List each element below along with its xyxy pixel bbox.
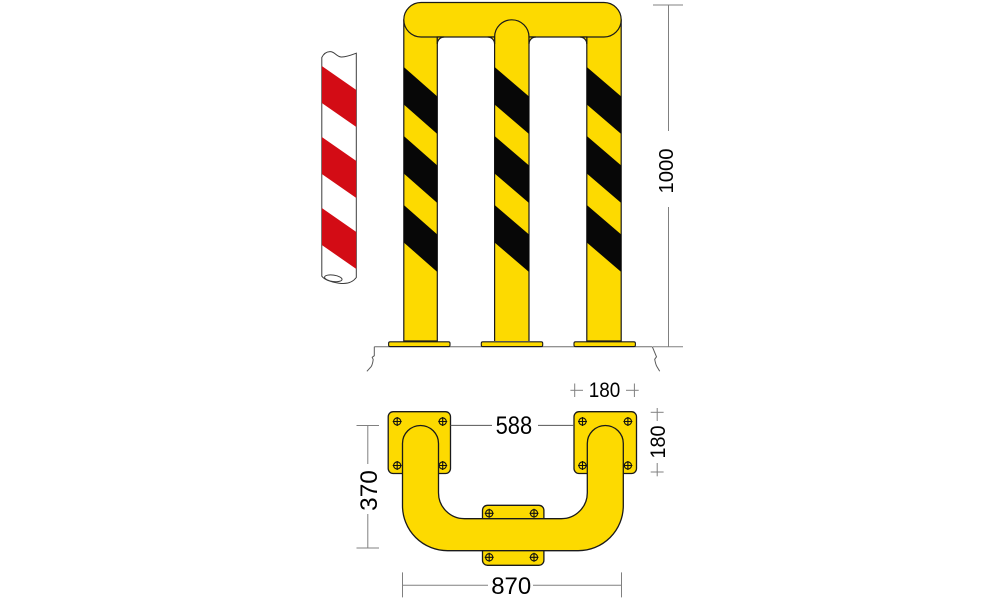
svg-text:370: 370 — [356, 470, 383, 511]
svg-text:180: 180 — [589, 379, 621, 402]
svg-text:588: 588 — [496, 412, 533, 440]
svg-text:180: 180 — [647, 426, 670, 459]
svg-text:1000: 1000 — [655, 149, 678, 194]
svg-text:870: 870 — [491, 573, 531, 600]
